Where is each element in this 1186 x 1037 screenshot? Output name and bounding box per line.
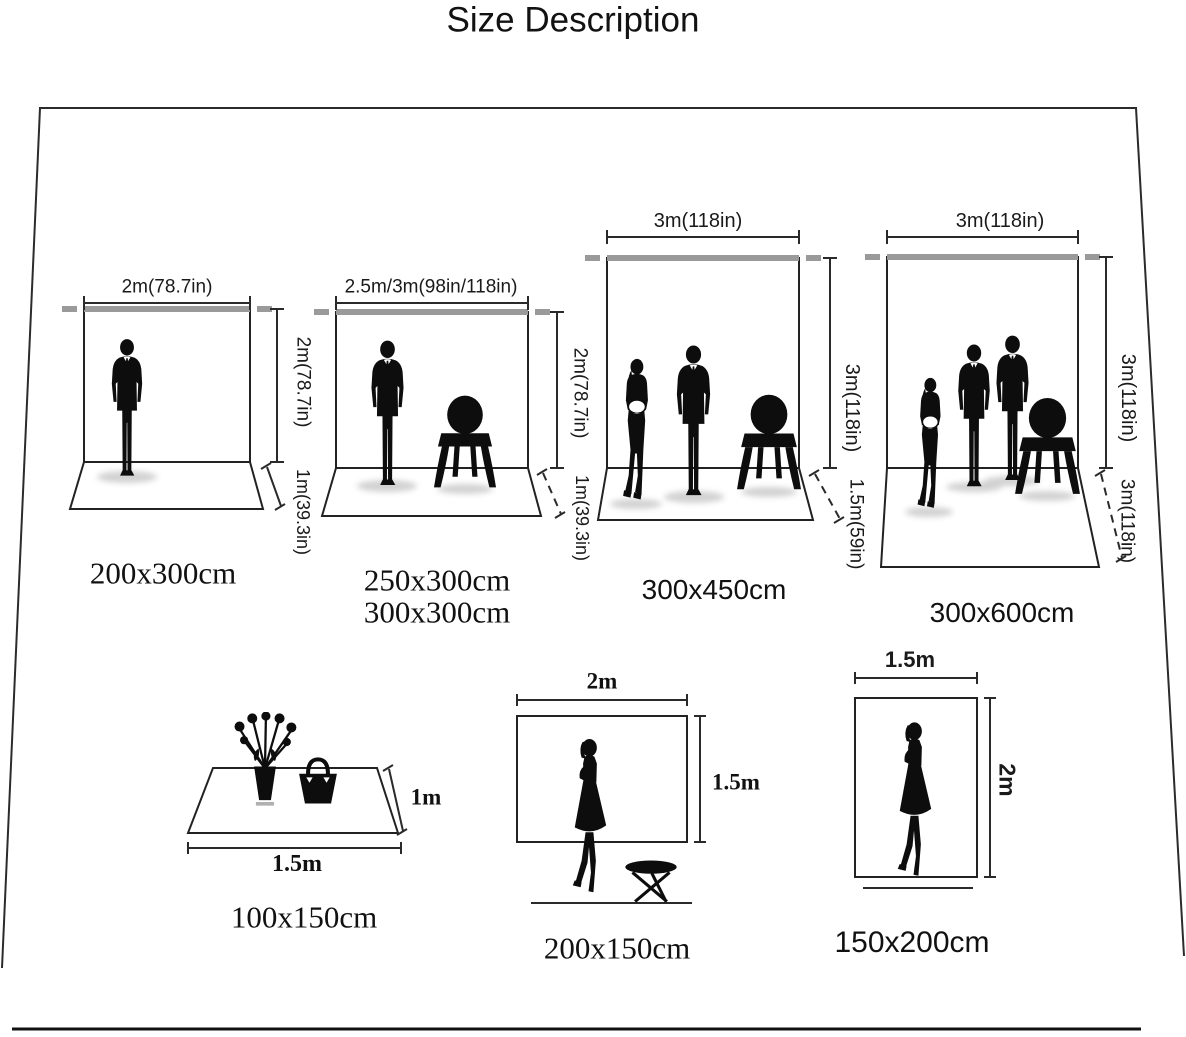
width-label-300x600: 3m(118in) (956, 211, 1045, 231)
height-label-250x300: 2m(78.7in) (571, 348, 590, 439)
size-label-200x300: 200x300cm (90, 558, 236, 589)
size-label-300x450: 300x450cm (642, 576, 787, 604)
backdrop-panel-250x300 (336, 312, 528, 468)
depth-label-200x300: 1m(39.3in) (294, 469, 312, 555)
size-label-200x150: 200x150cm (544, 933, 690, 964)
handbag-silhouette (299, 759, 337, 803)
stool-silhouette (625, 860, 676, 901)
height-label-200x300: 2m(78.7in) (294, 337, 313, 428)
width-label-100x150: 1.5m (272, 852, 322, 876)
height-label-150x200: 2m (996, 763, 1019, 796)
page-title: Size Description (447, 3, 700, 38)
size-label-150x200: 150x200cm (834, 928, 989, 958)
depth-label-300x450: 1.5m(59in) (847, 479, 866, 570)
height-label-300x450: 3m(118in) (842, 364, 862, 453)
floor-200x300 (70, 462, 263, 509)
size-label-300x600: 300x600cm (930, 599, 1075, 627)
width-label-300x450: 3m(118in) (654, 211, 743, 231)
size-label-250x300: 250x300cm (364, 565, 510, 596)
width-label-250x300: 2.5m/3m(98in/118in) (345, 278, 518, 297)
width-label-150x200: 1.5m (885, 649, 935, 671)
depth-label-250x300: 1m(39.3in) (573, 475, 591, 561)
height-label-300x600: 3m(118in) (1118, 354, 1138, 443)
size-description-infographic: Size Description 2m(78.7in) 2m(78.7in) 1… (0, 0, 1186, 1037)
width-label-200x300: 2m(78.7in) (122, 278, 213, 297)
width-label-200x150: 2m (587, 670, 618, 693)
backdrop-panel-200x300 (84, 309, 250, 462)
depth-label-100x150: 1m (411, 786, 442, 809)
mat-100x150 (188, 768, 398, 833)
floor-250x300 (322, 468, 541, 516)
depth-label-300x600: 3m(118in) (1118, 479, 1137, 563)
size-label-100x150: 100x150cm (231, 902, 377, 933)
height-label-200x150: 1.5m (712, 771, 760, 794)
size-label-300x300: 300x300cm (364, 597, 510, 628)
diagram-canvas (0, 0, 1186, 1037)
